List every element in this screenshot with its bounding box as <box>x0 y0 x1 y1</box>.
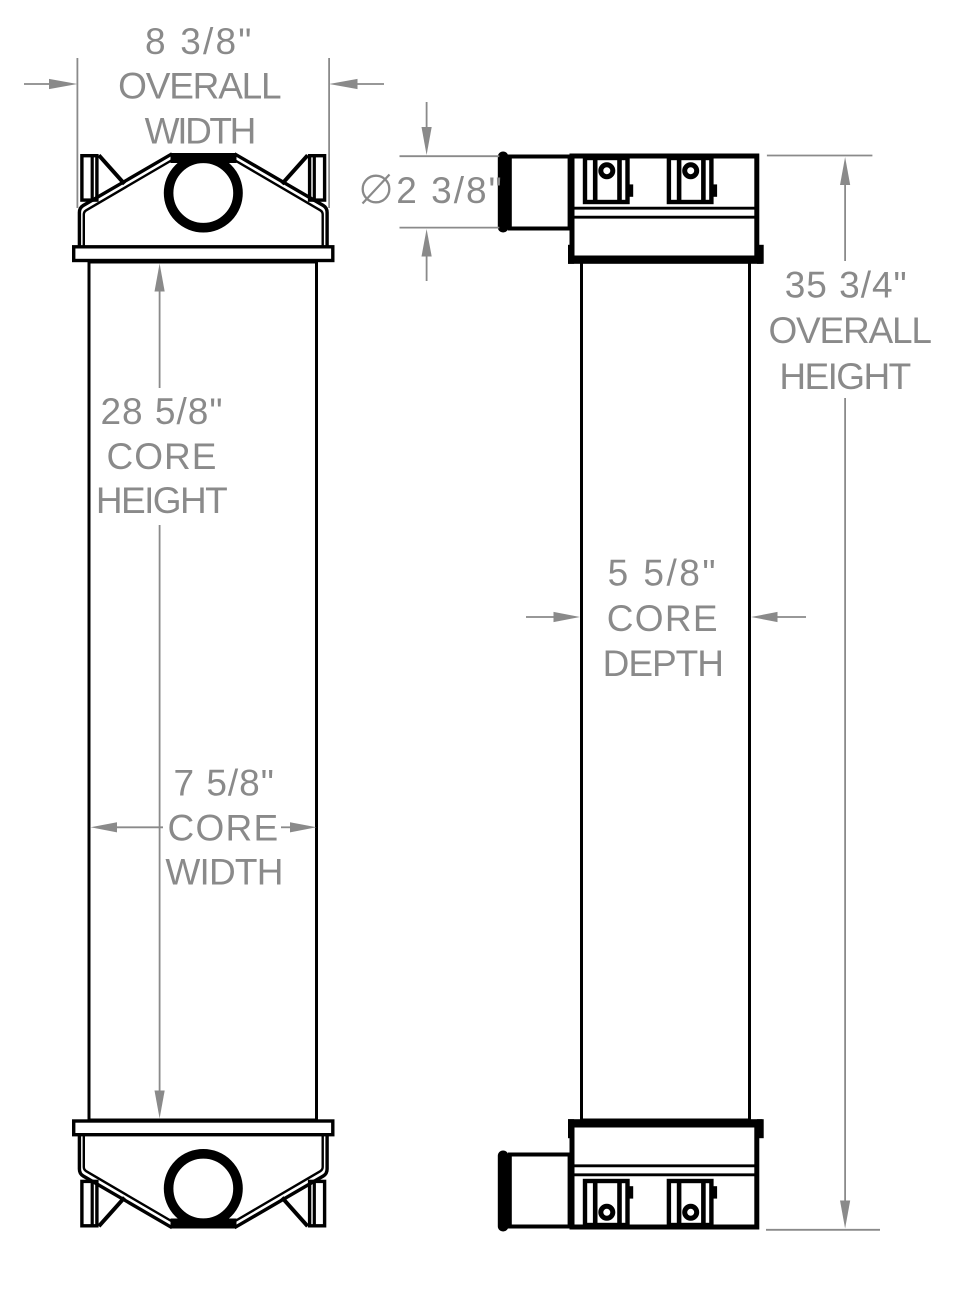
svg-text:35 3/4": 35 3/4" <box>785 265 908 306</box>
svg-text:2 3/8": 2 3/8" <box>396 170 503 211</box>
svg-text:CORE: CORE <box>167 808 279 849</box>
svg-text:5 5/8": 5 5/8" <box>608 553 718 594</box>
svg-text:OVERALL: OVERALL <box>118 65 281 106</box>
svg-text:CORE: CORE <box>107 436 218 477</box>
svg-text:7 5/8": 7 5/8" <box>173 762 274 803</box>
svg-text:8 3/8": 8 3/8" <box>145 21 254 62</box>
svg-text:DEPTH: DEPTH <box>603 643 723 684</box>
svg-text:CORE: CORE <box>607 598 719 639</box>
svg-text:OVERALL: OVERALL <box>768 310 931 351</box>
svg-text:HEIGHT: HEIGHT <box>96 480 227 521</box>
svg-text:WIDTH: WIDTH <box>165 852 282 893</box>
svg-text:WIDTH: WIDTH <box>145 110 254 151</box>
svg-text:28 5/8": 28 5/8" <box>100 391 223 432</box>
svg-text:HEIGHT: HEIGHT <box>779 356 910 397</box>
